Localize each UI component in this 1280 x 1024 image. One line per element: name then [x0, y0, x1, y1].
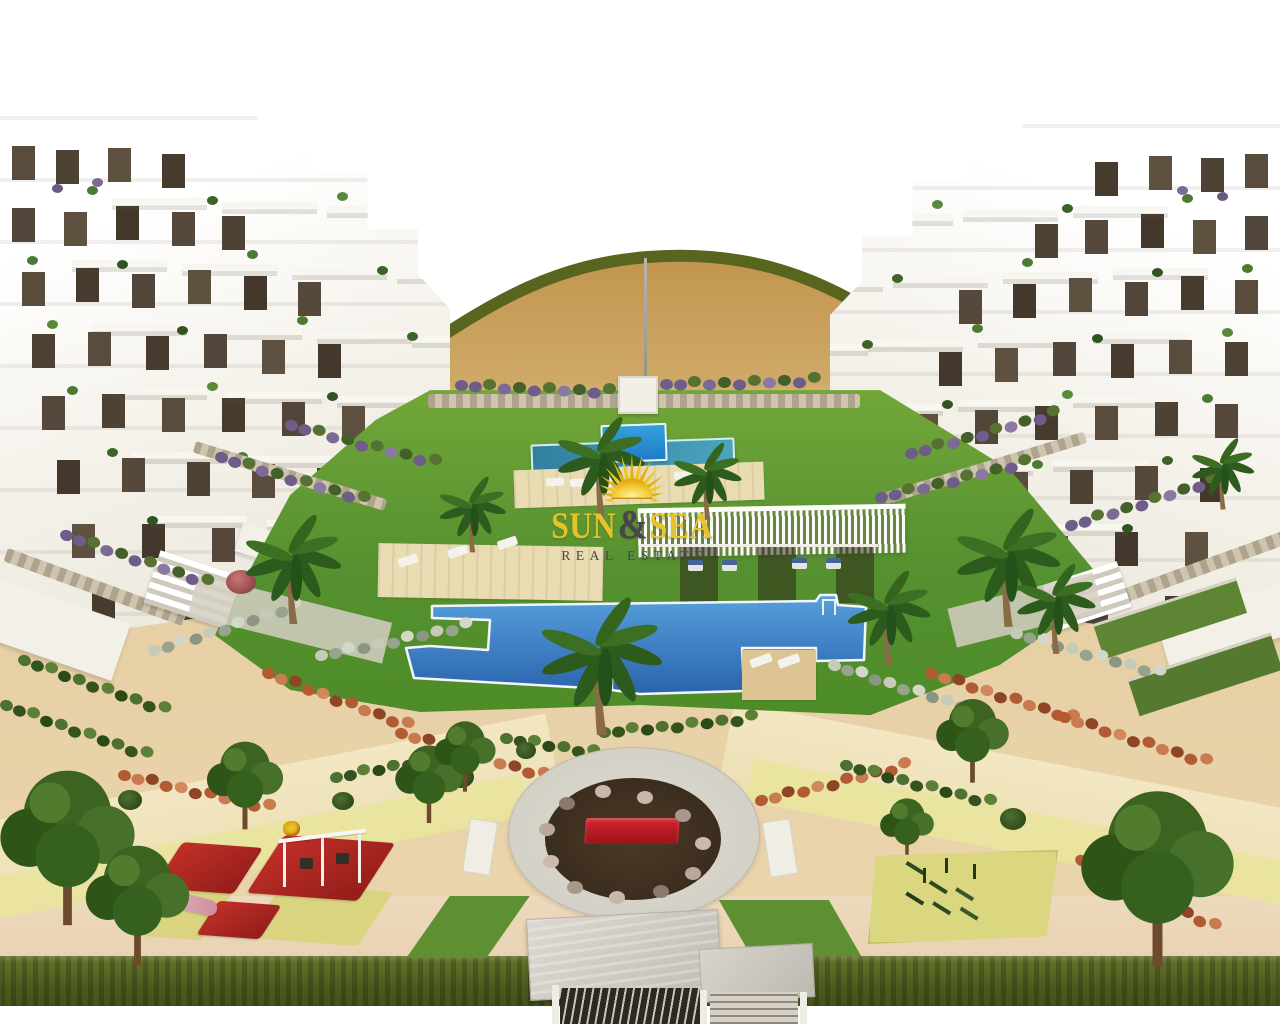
- tree-large: [1040, 768, 1275, 980]
- building-windows: [12, 146, 35, 180]
- building-balcony-plants: [1182, 194, 1193, 203]
- building-balcony-plants: [87, 186, 98, 195]
- swing-frame-post: [358, 831, 361, 883]
- shrub: [516, 742, 536, 759]
- tree: [425, 712, 505, 797]
- tree: [195, 730, 295, 836]
- shrub: [332, 792, 354, 810]
- fitness-mat: [868, 850, 1058, 944]
- plaza-red-feature: [584, 818, 680, 844]
- building-balconies: [1073, 206, 1168, 212]
- cabana-lounger: [792, 558, 807, 569]
- gatehouse-louver-bay: [710, 992, 798, 1024]
- watermark-ampersand: &: [616, 501, 650, 547]
- gatehouse-pillar: [700, 990, 707, 1024]
- plaza-shrub-ring: [595, 785, 611, 798]
- watermark-title: SUN&SEA: [551, 504, 713, 545]
- palm-tree: [528, 585, 673, 740]
- watermark-word1: SUN: [551, 506, 616, 547]
- spring-rider-toy: [283, 821, 300, 836]
- gatehouse-stairwell: [560, 988, 700, 1024]
- pool-ladder: [822, 599, 836, 615]
- gatehouse-pillar: [552, 985, 559, 1024]
- swing-seat: [300, 858, 313, 869]
- watermark-subtitle: REAL ESTATE: [538, 548, 726, 564]
- tree: [872, 790, 942, 865]
- gatehouse-pillar: [800, 992, 807, 1024]
- palm-tree: [838, 562, 938, 669]
- palm-tree: [235, 505, 350, 628]
- swing-frame-post: [321, 836, 324, 886]
- building-balcony-shadows: [112, 205, 207, 210]
- fitness-equipment-post: [945, 858, 948, 873]
- watermark-word2: SEA: [650, 506, 713, 547]
- tree-large: [70, 830, 205, 974]
- palm-tree: [1185, 432, 1260, 512]
- building-windows: [1245, 154, 1268, 188]
- sun-and-sea-watermark: SUN&SEA REAL ESTATE: [538, 444, 726, 564]
- sunburst-sun-icon: [584, 444, 680, 504]
- building-balconies: [112, 198, 207, 204]
- swing-seat: [336, 853, 349, 864]
- swing-frame-post: [283, 841, 286, 887]
- palm-tree: [1008, 556, 1103, 657]
- building-balcony-shadows: [1073, 213, 1168, 218]
- tree: [925, 688, 1020, 789]
- shrub: [1000, 808, 1026, 830]
- palm-tree: [432, 470, 512, 555]
- property-aerial-render: SUN&SEA REAL ESTATE: [0, 0, 1280, 1024]
